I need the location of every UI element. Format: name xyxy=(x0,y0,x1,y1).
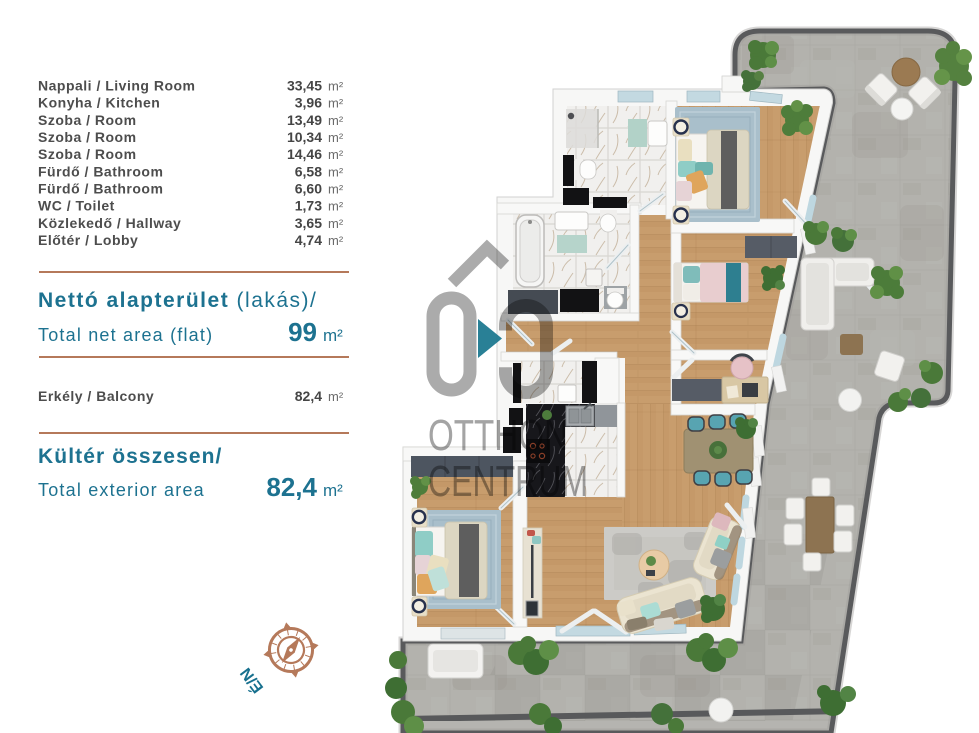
svg-text:99: 99 xyxy=(288,317,317,347)
svg-text:OTTHON: OTTHON xyxy=(428,411,568,460)
svg-text:m²: m² xyxy=(328,216,344,231)
svg-text:Fürdő / Bathroom: Fürdő / Bathroom xyxy=(38,181,163,197)
svg-text:Konyha / Kitchen: Konyha / Kitchen xyxy=(38,95,160,111)
svg-text:m²: m² xyxy=(328,389,344,404)
svg-text:3,96: 3,96 xyxy=(295,95,322,111)
svg-text:CENTRUM: CENTRUM xyxy=(428,457,588,506)
svg-text:Szoba / Room: Szoba / Room xyxy=(38,112,137,128)
svg-text:É/N: É/N xyxy=(236,664,267,697)
svg-text:33,45: 33,45 xyxy=(287,78,322,94)
svg-text:Nappali / Living Room: Nappali / Living Room xyxy=(38,78,196,94)
svg-text:13,49: 13,49 xyxy=(287,112,322,128)
svg-text:6,60: 6,60 xyxy=(295,181,322,197)
svg-text:m²: m² xyxy=(328,182,344,197)
svg-text:WC / Toilet: WC / Toilet xyxy=(38,198,115,214)
svg-text:Nettó alapterület (lakás)/: Nettó alapterület (lakás)/ xyxy=(38,289,317,312)
svg-text:m²: m² xyxy=(328,96,344,111)
svg-text:Szoba / Room: Szoba / Room xyxy=(38,146,137,162)
svg-text:m²: m² xyxy=(328,164,344,179)
svg-text:m²: m² xyxy=(328,130,344,145)
svg-text:1,73: 1,73 xyxy=(295,198,322,214)
svg-text:10,34: 10,34 xyxy=(287,129,322,145)
svg-text:14,46: 14,46 xyxy=(287,146,322,162)
svg-text:m²: m² xyxy=(328,233,344,248)
svg-text:Közlekedő / Hallway: Közlekedő / Hallway xyxy=(38,215,181,231)
svg-text:82,4: 82,4 xyxy=(295,388,322,404)
svg-text:82,4: 82,4 xyxy=(266,472,317,502)
svg-text:m²: m² xyxy=(328,79,344,94)
svg-text:m²: m² xyxy=(323,326,343,345)
svg-text:m²: m² xyxy=(323,481,343,500)
svg-text:4,74: 4,74 xyxy=(295,232,322,248)
svg-text:m²: m² xyxy=(328,147,344,162)
svg-text:Total exterior area: Total exterior area xyxy=(38,480,205,500)
svg-text:Szoba / Room: Szoba / Room xyxy=(38,129,137,145)
svg-text:Erkély / Balcony: Erkély / Balcony xyxy=(38,388,154,404)
svg-text:m²: m² xyxy=(328,113,344,128)
svg-text:m²: m² xyxy=(328,199,344,214)
svg-text:Előtér / Lobby: Előtér / Lobby xyxy=(38,232,138,248)
svg-text:Total net area (flat): Total net area (flat) xyxy=(38,325,213,345)
svg-text:Kültér összesen/: Kültér összesen/ xyxy=(38,445,223,468)
svg-text:3,65: 3,65 xyxy=(295,215,322,231)
svg-text:Fürdő / Bathroom: Fürdő / Bathroom xyxy=(38,163,163,179)
svg-text:6,58: 6,58 xyxy=(295,163,322,179)
